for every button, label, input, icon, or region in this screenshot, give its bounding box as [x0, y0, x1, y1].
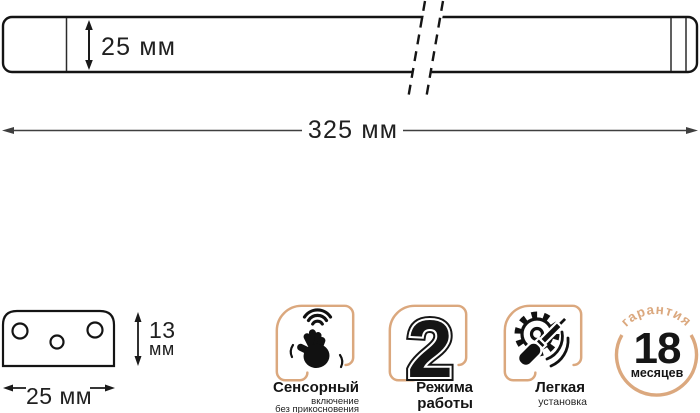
mount-hole-left — [13, 324, 28, 339]
gear-screwdriver-icon — [510, 308, 578, 376]
bar-height-label: 25 мм — [101, 33, 176, 62]
mount-hole-right — [88, 323, 103, 338]
mount-hole-center — [51, 336, 64, 349]
endview-height-arrow — [135, 312, 142, 366]
feature-subtitle: установка — [538, 396, 587, 408]
hand-wave-icon — [281, 307, 351, 379]
feature-title: Легкая — [535, 379, 585, 396]
endview-height-unit: мм — [149, 339, 175, 360]
feature-easy-install: Легкая установка — [501, 301, 593, 413]
endview-width-label: 25 мм — [26, 383, 90, 410]
feature-touch-sensor: Сенсорный включение без прикосновения — [273, 301, 365, 413]
feature-title-line1: Режима — [416, 379, 473, 396]
warranty-badge: гарантия 18 месяцев — [611, 296, 700, 402]
feature-two-modes: 2 2 2 Режима работы — [386, 301, 478, 413]
bar-length-label: 325 мм — [303, 116, 403, 145]
product-dimensions-infographic: 25 мм 325 мм 13 мм 25 мм — [0, 0, 700, 413]
feature-subtitle-2: без прикосновения — [275, 404, 359, 413]
number-2-icon: 2 2 2 — [396, 309, 464, 379]
feature-title-line2: работы — [417, 395, 473, 412]
badge-unit: месяцев — [631, 366, 684, 380]
feature-title: Сенсорный — [273, 379, 359, 396]
